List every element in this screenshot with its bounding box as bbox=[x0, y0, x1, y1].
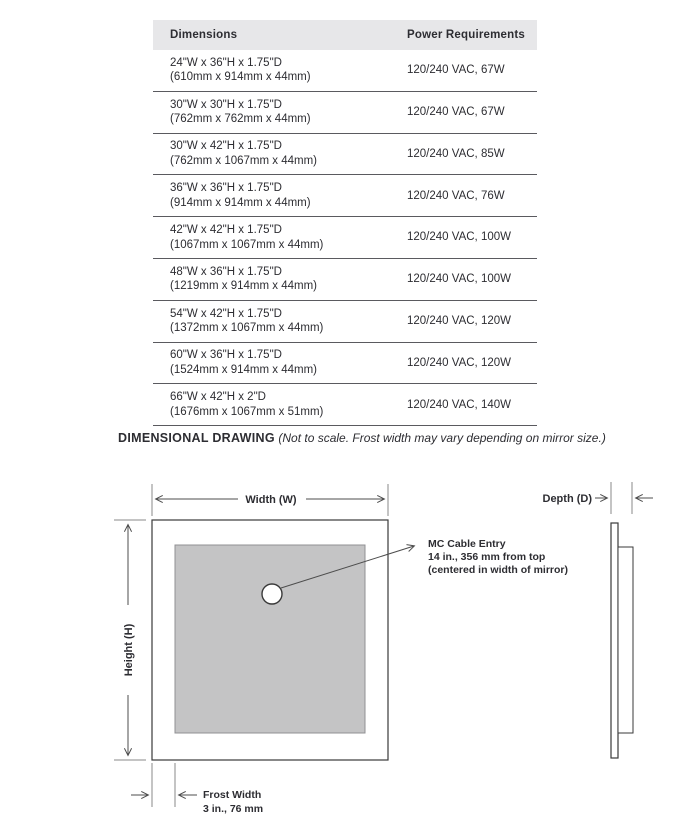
width-label: Width (W) bbox=[245, 494, 297, 506]
mirror-side-backbox bbox=[618, 547, 633, 733]
power-cell: 120/240 VAC, 120W bbox=[407, 356, 537, 371]
dimensions-cell: 42"W x 42"H x 1.75"D (1067mm x 1067mm x … bbox=[153, 223, 407, 252]
dimensions-cell: 48"W x 36"H x 1.75"D (1219mm x 914mm x 4… bbox=[153, 265, 407, 294]
dimensions-cell: 66"W x 42"H x 2"D (1676mm x 1067mm x 51m… bbox=[153, 390, 407, 419]
dimensions-inches: 60"W x 36"H x 1.75"D bbox=[170, 348, 407, 363]
dimensional-drawing: MC Cable Entry 14 in., 356 mm from top (… bbox=[0, 455, 683, 831]
power-cell: 120/240 VAC, 76W bbox=[407, 189, 537, 204]
cable-entry-note-line2: 14 in., 356 mm from top bbox=[428, 551, 545, 563]
dimensions-mm: (1372mm x 1067mm x 44mm) bbox=[170, 321, 407, 336]
dimensions-inches: 30"W x 30"H x 1.75"D bbox=[170, 98, 407, 113]
dimensions-mm: (1219mm x 914mm x 44mm) bbox=[170, 279, 407, 294]
spec-table: Dimensions Power Requirements 24"W x 36"… bbox=[153, 20, 537, 426]
table-row: 66"W x 42"H x 2"D (1676mm x 1067mm x 51m… bbox=[153, 384, 537, 426]
dimensions-mm: (610mm x 914mm x 44mm) bbox=[170, 70, 407, 85]
section-subtitle-text: (Not to scale. Frost width may vary depe… bbox=[278, 431, 605, 445]
mc-cable-entry-hole bbox=[262, 584, 282, 604]
dimensions-cell: 54"W x 42"H x 1.75"D (1372mm x 1067mm x … bbox=[153, 307, 407, 336]
cable-entry-note-line1: MC Cable Entry bbox=[428, 538, 506, 550]
power-cell: 120/240 VAC, 100W bbox=[407, 230, 537, 245]
power-cell: 120/240 VAC, 100W bbox=[407, 272, 537, 287]
dimensions-mm: (1676mm x 1067mm x 51mm) bbox=[170, 405, 407, 420]
table-header-row: Dimensions Power Requirements bbox=[153, 20, 537, 50]
power-cell: 120/240 VAC, 120W bbox=[407, 314, 537, 329]
table-row: 42"W x 42"H x 1.75"D (1067mm x 1067mm x … bbox=[153, 217, 537, 259]
dimensions-inches: 66"W x 42"H x 2"D bbox=[170, 390, 407, 405]
dimensional-drawing-heading: DIMENSIONAL DRAWING (Not to scale. Frost… bbox=[118, 430, 678, 446]
dimensions-inches: 36"W x 36"H x 1.75"D bbox=[170, 181, 407, 196]
cable-entry-note-line3: (centered in width of mirror) bbox=[428, 564, 568, 576]
dimensions-inches: 30"W x 42"H x 1.75"D bbox=[170, 139, 407, 154]
frost-area bbox=[175, 545, 365, 733]
table-row: 48"W x 36"H x 1.75"D (1219mm x 914mm x 4… bbox=[153, 259, 537, 301]
dimensions-mm: (762mm x 1067mm x 44mm) bbox=[170, 154, 407, 169]
depth-label: Depth (D) bbox=[543, 493, 593, 505]
column-header-power: Power Requirements bbox=[407, 29, 537, 41]
table-row: 24"W x 36"H x 1.75"D (610mm x 914mm x 44… bbox=[153, 50, 537, 92]
dimensions-cell: 36"W x 36"H x 1.75"D (914mm x 914mm x 44… bbox=[153, 181, 407, 210]
dimensions-mm: (762mm x 762mm x 44mm) bbox=[170, 112, 407, 127]
dimensions-inches: 42"W x 42"H x 1.75"D bbox=[170, 223, 407, 238]
table-row: 30"W x 30"H x 1.75"D (762mm x 762mm x 44… bbox=[153, 92, 537, 134]
spec-sheet-page: { "table": { "columns": { "dimensions": … bbox=[0, 0, 683, 831]
table-row: 36"W x 36"H x 1.75"D (914mm x 914mm x 44… bbox=[153, 175, 537, 217]
dimensions-inches: 54"W x 42"H x 1.75"D bbox=[170, 307, 407, 322]
frost-width-label-line2: 3 in., 76 mm bbox=[203, 803, 263, 815]
table-row: 60"W x 36"H x 1.75"D (1524mm x 914mm x 4… bbox=[153, 343, 537, 385]
dimensions-cell: 30"W x 30"H x 1.75"D (762mm x 762mm x 44… bbox=[153, 98, 407, 127]
dimensions-mm: (1524mm x 914mm x 44mm) bbox=[170, 363, 407, 378]
frost-width-label-line1: Frost Width bbox=[203, 789, 261, 801]
table-row: 30"W x 42"H x 1.75"D (762mm x 1067mm x 4… bbox=[153, 134, 537, 176]
dimensions-cell: 60"W x 36"H x 1.75"D (1524mm x 914mm x 4… bbox=[153, 348, 407, 377]
height-label: Height (H) bbox=[123, 623, 135, 676]
power-cell: 120/240 VAC, 67W bbox=[407, 63, 537, 78]
mirror-side-glass bbox=[611, 523, 618, 758]
dimensions-inches: 48"W x 36"H x 1.75"D bbox=[170, 265, 407, 280]
section-title-text: DIMENSIONAL DRAWING bbox=[118, 431, 275, 445]
column-header-dimensions: Dimensions bbox=[153, 29, 407, 41]
power-cell: 120/240 VAC, 140W bbox=[407, 398, 537, 413]
dimensions-cell: 24"W x 36"H x 1.75"D (610mm x 914mm x 44… bbox=[153, 56, 407, 85]
dimensions-inches: 24"W x 36"H x 1.75"D bbox=[170, 56, 407, 71]
power-cell: 120/240 VAC, 85W bbox=[407, 147, 537, 162]
power-cell: 120/240 VAC, 67W bbox=[407, 105, 537, 120]
dimensions-cell: 30"W x 42"H x 1.75"D (762mm x 1067mm x 4… bbox=[153, 139, 407, 168]
dimensions-mm: (914mm x 914mm x 44mm) bbox=[170, 196, 407, 211]
dimensions-mm: (1067mm x 1067mm x 44mm) bbox=[170, 238, 407, 253]
table-row: 54"W x 42"H x 1.75"D (1372mm x 1067mm x … bbox=[153, 301, 537, 343]
